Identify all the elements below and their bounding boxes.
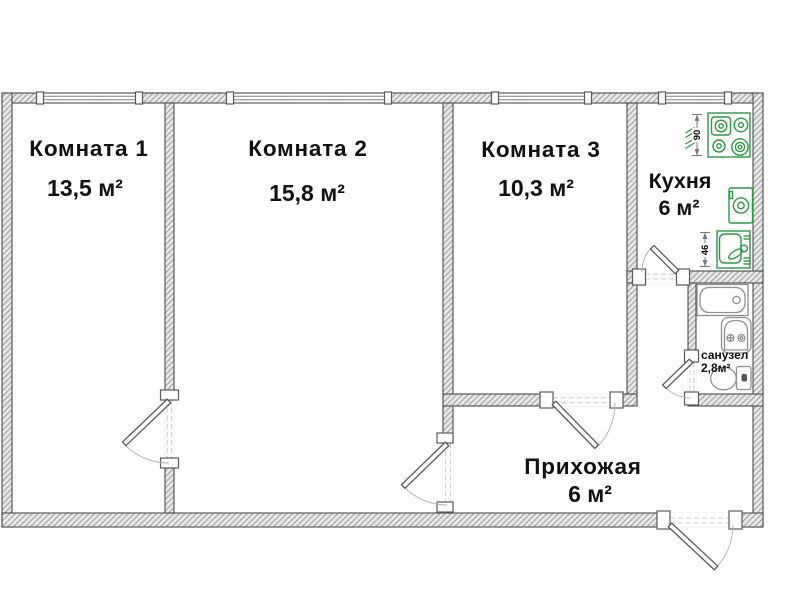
door-kitchen	[633, 245, 690, 285]
door-room1	[122, 390, 178, 468]
dimension-sink-label: 46	[700, 245, 711, 256]
room-3-area-label: 10,3 м²	[498, 175, 574, 201]
door-entrance	[657, 511, 742, 570]
window-room2	[227, 92, 393, 104]
wall-right	[753, 93, 763, 527]
window-room3	[492, 92, 593, 104]
bathtub-icon	[697, 285, 748, 316]
room-2-area-label: 15,8 м²	[269, 180, 345, 206]
room-3-name-label: Комната 3	[481, 137, 600, 162]
door-room2	[402, 433, 454, 512]
dimension-stove-label: 90	[692, 130, 703, 141]
labels: Комната 1 13,5 м² Комната 2 15,8 м² Комн…	[29, 136, 748, 507]
room-1-name-label: Комната 1	[29, 136, 148, 161]
kitchen-area-label: 6 м²	[659, 196, 700, 220]
kitchen-sink-icon	[717, 231, 750, 268]
dimension-stove: 90	[686, 115, 704, 156]
wall-bathroom-bottom	[688, 394, 763, 406]
kitchen-name-label: Кухня	[649, 169, 712, 193]
door-bathroom	[663, 350, 699, 405]
floor-plan: 90 46 Комната 1 13,5 м² Комната 2 15,8 м…	[0, 0, 800, 600]
hall-name-label: Прихожая	[524, 454, 641, 479]
washing-machine-icon	[729, 188, 753, 223]
hall-area-label: 6 м²	[568, 481, 612, 507]
window-room1	[37, 92, 143, 104]
room-1-area-label: 13,5 м²	[47, 175, 123, 201]
dimension-sink: 46	[700, 233, 711, 267]
window-kitchen	[659, 92, 733, 104]
room-2-name-label: Комната 2	[248, 136, 367, 161]
door-room3	[540, 392, 623, 448]
wall-bottom	[2, 513, 763, 527]
bathroom-name-label: санузел	[701, 348, 748, 362]
stove-icon	[708, 113, 750, 157]
wall-left	[2, 93, 12, 527]
bathroom-area-label: 2,8м²	[701, 361, 731, 375]
wall-room3-kitchen	[627, 103, 637, 405]
floor-plan-page: 90 46 Комната 1 13,5 м² Комната 2 15,8 м…	[0, 0, 800, 600]
